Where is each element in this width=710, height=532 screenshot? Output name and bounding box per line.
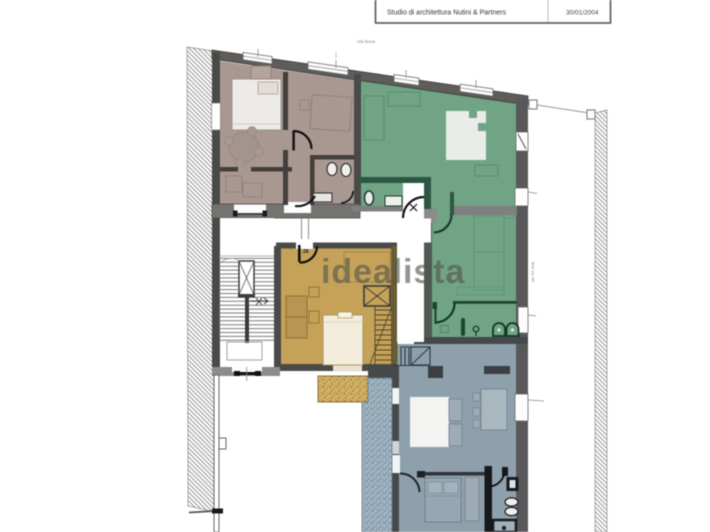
- svg-text:Via Nova: Via Nova: [357, 39, 376, 44]
- svg-text:28: 28: [303, 249, 309, 255]
- svg-text:idealista: idealista: [321, 253, 465, 291]
- svg-text:Studio di architettura Nutini: Studio di architettura Nutini & Partners: [387, 10, 507, 17]
- svg-text:via XX Sett.: via XX Sett.: [530, 261, 535, 282]
- svg-text:30/01/2004: 30/01/2004: [566, 10, 599, 17]
